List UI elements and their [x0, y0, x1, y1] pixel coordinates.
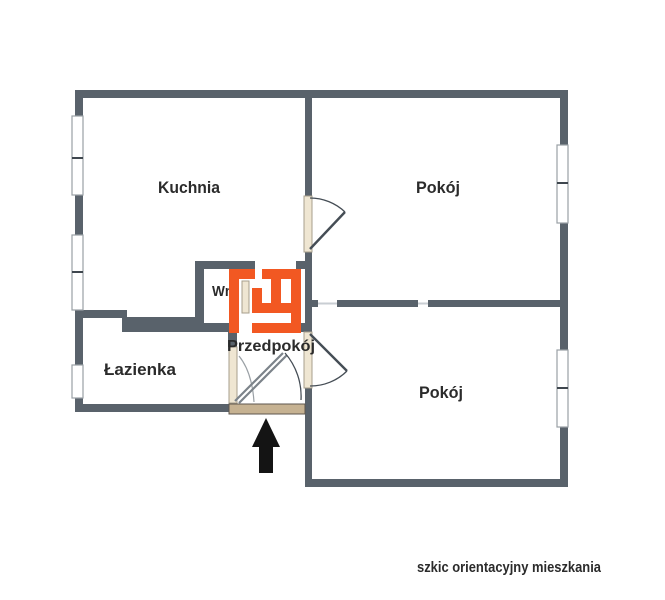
wall-divider-main — [337, 300, 418, 307]
wall-middle-lower — [305, 388, 312, 487]
walls — [75, 90, 568, 487]
highlight-wall-bottom-b — [252, 323, 301, 333]
room-label-room-lower: Pokój — [419, 383, 463, 402]
window-bathroom — [72, 365, 83, 398]
windows — [72, 116, 568, 427]
room-label-kitchen: Kuchnia — [158, 178, 221, 197]
highlight-wall-inner-v — [271, 279, 281, 305]
room-labels: Kuchnia Pokój Pokój Łazienka Przedpokój — [104, 178, 463, 402]
arrow-shaft — [259, 447, 273, 473]
wall-divider-right — [428, 300, 560, 307]
door-arc-room-lower — [310, 371, 347, 386]
room-label-bathroom: Łazienka — [104, 360, 177, 379]
door-arc-room-upper — [310, 198, 345, 212]
highlight-wall-top-a — [229, 269, 255, 279]
door-bathroom — [229, 347, 237, 403]
arrow-head — [252, 418, 280, 447]
caption: szkic orientacyjny mieszkania — [417, 559, 602, 576]
room-label-hallway: Przedpokój — [227, 338, 315, 355]
entrance-door-arc — [285, 353, 301, 400]
wall-top — [75, 90, 568, 98]
wall-kitchen-bath-thin — [78, 310, 127, 318]
wall-wc-top-stub — [296, 261, 312, 269]
highlight-wall-inner-nub — [252, 288, 262, 305]
wall-kitchen-bath-thick — [122, 317, 203, 332]
door-highlight-cell — [242, 281, 249, 313]
floor-plan: Wnęka Kuchnia Pokój Pokój Łazienka Przed… — [0, 0, 665, 600]
door-leaf-room-upper — [310, 212, 345, 249]
door-room-upper — [304, 196, 312, 252]
highlight-structure — [229, 269, 301, 333]
floor-plan-svg: Wnęka Kuchnia Pokój Pokój Łazienka Przed… — [0, 0, 665, 600]
wall-alcove-top — [195, 261, 255, 269]
wall-alcove-left — [195, 261, 204, 328]
door-leaf-room-lower — [310, 334, 347, 371]
entrance-door-leaf-2 — [239, 355, 287, 403]
room-label-room-upper: Pokój — [416, 178, 460, 197]
wall-divider-stub — [305, 300, 318, 307]
entrance-sill — [229, 404, 305, 414]
wall-bottom-right — [305, 479, 568, 487]
wall-middle-upper — [305, 90, 312, 196]
window-kitchen-1 — [72, 116, 83, 195]
highlight-wall-bottom-a — [229, 323, 239, 333]
entrance-arrow-icon — [252, 418, 280, 473]
